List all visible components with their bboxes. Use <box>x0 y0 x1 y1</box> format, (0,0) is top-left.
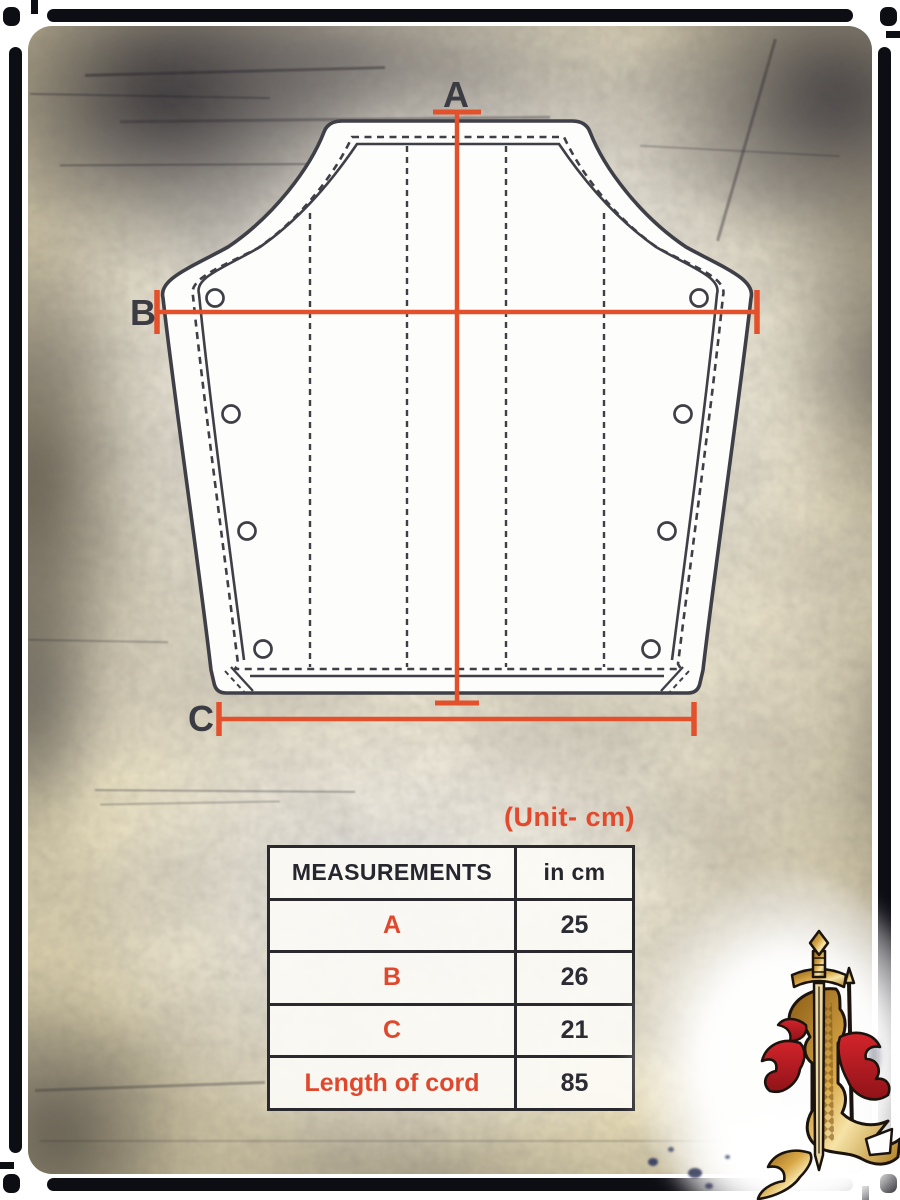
frame-corner-dot <box>880 7 897 26</box>
ink-splatter <box>725 1155 730 1159</box>
table-header-unit: in cm <box>517 848 632 898</box>
red-leaf-right <box>838 1033 889 1099</box>
table-row: Length of cord 85 <box>270 1055 632 1108</box>
frame-corner-stub <box>0 1162 14 1169</box>
red-leaf-left-upper <box>778 1019 806 1041</box>
frame-corner-stub <box>31 0 38 14</box>
product-sizing-page: A B C (Unit- cm) MEASUREMENTS in cm A 25… <box>0 0 900 1200</box>
ink-splatter <box>688 1168 702 1178</box>
table-row-label: C <box>270 1006 517 1056</box>
table-row-label: A <box>270 901 517 951</box>
frame-corner-stub <box>886 31 900 38</box>
ink-splatter <box>668 1147 674 1152</box>
measurements-table: MEASUREMENTS in cm A 25 B 26 C 21 Length… <box>267 845 635 1111</box>
red-leaf-left <box>762 1041 805 1092</box>
table-row-value: 25 <box>517 901 632 951</box>
table-row-label: B <box>270 953 517 1003</box>
scratch-mark <box>100 800 280 805</box>
table-row: B 26 <box>270 950 632 1003</box>
ink-splatter <box>648 1158 658 1166</box>
table-header-row: MEASUREMENTS in cm <box>270 848 632 898</box>
unit-note: (Unit- cm) <box>420 802 635 833</box>
table-row: A 25 <box>270 898 632 951</box>
table-row-value: 85 <box>517 1058 632 1108</box>
ink-splatter <box>705 1183 713 1189</box>
frame-corner-dot <box>3 1174 20 1193</box>
frame-bar-top <box>47 9 853 22</box>
table-row-label: Length of cord <box>270 1058 517 1108</box>
sword-monogram-logo <box>740 925 900 1200</box>
table-header-measurements: MEASUREMENTS <box>270 848 517 898</box>
table-row: C 21 <box>270 1003 632 1056</box>
scratch-mark <box>40 1140 720 1142</box>
table-row-value: 26 <box>517 953 632 1003</box>
texture-smudge <box>118 1116 718 1174</box>
scratch-mark <box>95 789 355 793</box>
table-row-value: 21 <box>517 1006 632 1056</box>
gold-flourish <box>758 1151 811 1199</box>
frame-bar-left <box>9 47 22 1153</box>
frame-corner-dot <box>3 7 20 26</box>
